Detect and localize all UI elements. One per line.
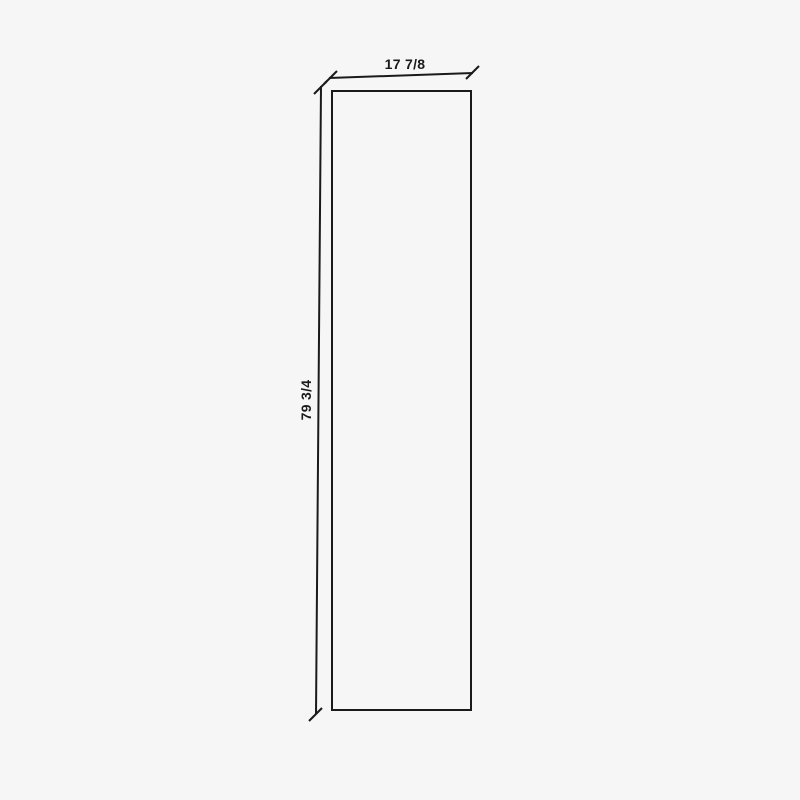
height-dimension-line: [316, 86, 321, 714]
height-dimension-label: 79 3/4: [299, 380, 313, 421]
panel-outline: [332, 91, 471, 710]
panel-dimension-drawing: [0, 0, 800, 800]
drawing-lines: [309, 66, 479, 721]
width-dimension-label: 17 7/8: [385, 57, 426, 71]
width-dimension-line: [329, 73, 473, 78]
dimension-drawing-canvas: 17 7/8 79 3/4: [0, 0, 800, 800]
